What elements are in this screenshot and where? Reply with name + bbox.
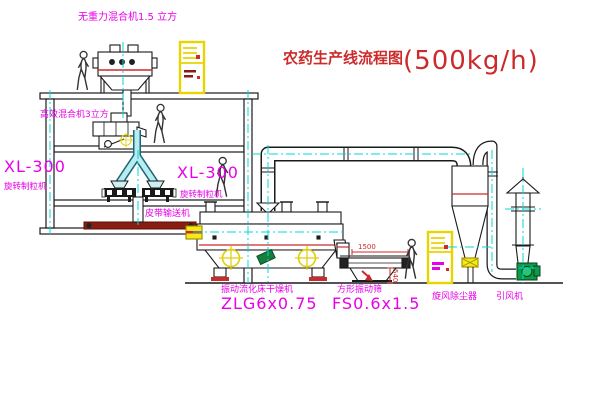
person-roof <box>77 51 88 90</box>
process-flow-diagram: 农药生产线流程图(500kg/h) 无重力混合机1.5 立方 高效混合机3立方 … <box>0 0 600 403</box>
dim-screen-length: 1500 <box>358 244 376 251</box>
dryer-hood <box>200 212 341 224</box>
label-dryer-model: ZLG6x0.75 <box>221 296 318 312</box>
induced-draft-fan <box>517 263 540 280</box>
dryer-body <box>197 224 343 250</box>
label-belt-conveyor: 皮带输送机 <box>145 210 190 219</box>
label-granulator-right-name: 旋转制粒机 <box>180 191 223 200</box>
page-title: 农药生产线流程图(500kg/h) <box>283 46 539 76</box>
label-screen-model: FS0.6x1.5 <box>332 296 420 312</box>
granulator-right <box>142 181 176 202</box>
title-capacity: (500kg/h) <box>403 46 539 76</box>
gravity-free-mixer <box>93 45 157 116</box>
granulator-left <box>102 181 136 202</box>
fluid-bed-dryer <box>186 202 348 281</box>
label-top-mixer: 无重力混合机1.5 立方 <box>78 13 177 23</box>
belt-conveyor <box>84 222 196 229</box>
label-floor2-mixer: 高效混合机3立方 <box>40 111 109 120</box>
person-floor2 <box>154 104 165 143</box>
title-cn: 农药生产线流程图 <box>283 49 403 67</box>
mixer-down-pipe <box>123 90 131 116</box>
cyclone-body <box>452 166 488 206</box>
label-fan: 引风机 <box>496 293 523 302</box>
control-cabinet-1 <box>180 42 204 93</box>
label-granulator-left-model: XL-300 <box>4 159 66 175</box>
dim-screen-height: 540 <box>391 269 398 282</box>
label-cyclone: 旋风除尘器 <box>432 293 477 302</box>
control-cabinet-2 <box>428 232 452 283</box>
label-granulator-left-name: 旋转制粒机 <box>4 183 47 192</box>
screen-base <box>350 268 396 281</box>
floor2-slab <box>54 146 244 152</box>
cyclone-cone <box>452 206 488 258</box>
cyclone <box>452 166 488 283</box>
label-granulator-right-model: XL-300 <box>177 165 239 181</box>
roof-slab <box>40 93 258 99</box>
